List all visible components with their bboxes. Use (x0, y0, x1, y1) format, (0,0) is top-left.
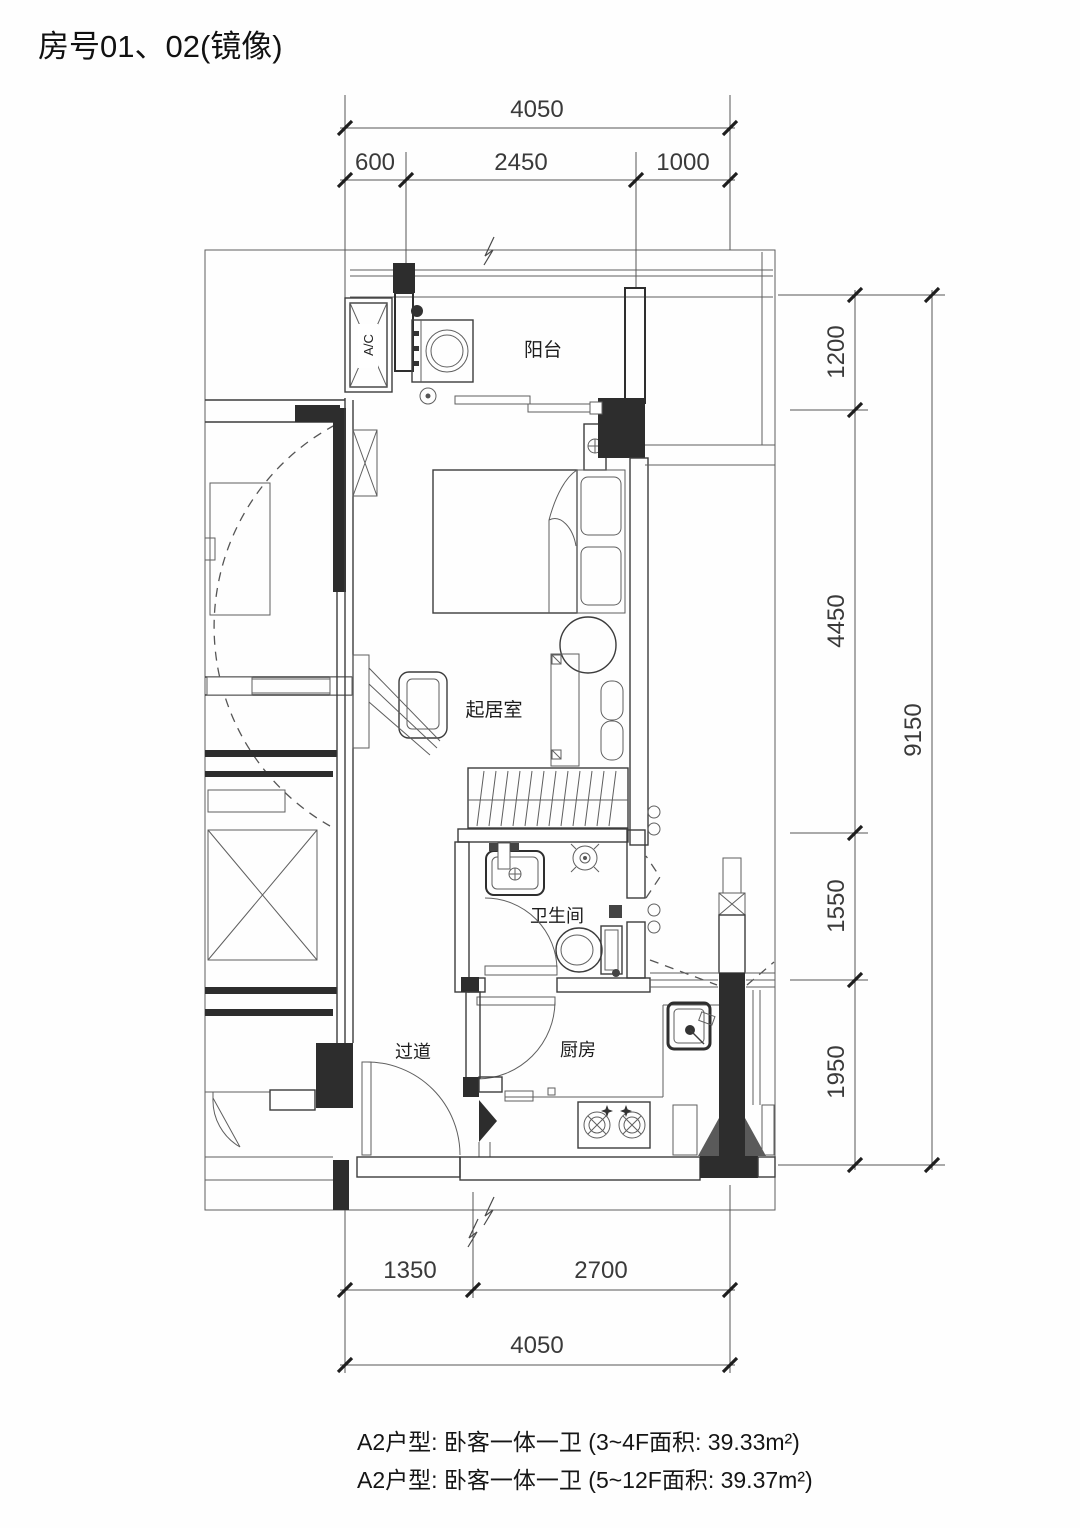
dim-right-seg1: 1200 (823, 325, 850, 378)
duct-marker (479, 1100, 497, 1142)
washing-machine (411, 305, 473, 382)
wardrobe (468, 768, 628, 828)
floor-plan-drawing: 房号01、02(镜像) 4050 600 2450 1000 1200 4450… (0, 0, 1080, 1528)
desk (353, 655, 440, 755)
unit-notes: A2户型: 卧客一体一卫 (3~4F面积: 39.33m²) A2户型: 卧客一… (357, 1429, 813, 1493)
bathroom-sink (486, 843, 544, 895)
room-label-bathroom: 卫生间 (530, 906, 584, 926)
dim-right-seg2: 4450 (823, 594, 850, 647)
column-top (393, 263, 415, 293)
dim-right-seg4: 1950 (823, 1045, 850, 1098)
room-label-balcony: 阳台 (524, 339, 562, 361)
kitchen-door (477, 997, 555, 1079)
dim-bottom-seg1: 1350 (383, 1257, 436, 1284)
bottom-wall (357, 1155, 775, 1180)
balcony: A/C 阳台 (345, 252, 773, 470)
pillow (581, 547, 621, 605)
column-corner (598, 398, 645, 458)
cabinet (353, 430, 377, 496)
shower-drain (571, 844, 599, 872)
room-label-corridor: 过道 (395, 1042, 431, 1062)
note-line-1: A2户型: 卧客一体一卫 (3~4F面积: 39.33m²) (357, 1429, 800, 1455)
dimensions-right: 1200 4450 1550 1950 9150 (778, 288, 945, 1172)
living-room: 起居室 (345, 398, 648, 1043)
room-label-living: 起居室 (465, 699, 522, 721)
dim-top-seg1: 600 (355, 149, 395, 176)
dim-bottom-seg2: 2700 (574, 1257, 627, 1284)
note-line-2: A2户型: 卧客一体一卫 (5~12F面积: 39.37m²) (357, 1467, 813, 1493)
ac-unit: A/C (350, 303, 387, 387)
wall-right-hatched (630, 458, 648, 845)
dim-right-seg3: 1550 (823, 879, 850, 932)
dimensions-bottom: 1350 2700 4050 (338, 1185, 737, 1373)
dim-top-seg2: 2450 (494, 149, 547, 176)
sliding-door (455, 396, 530, 404)
round-table (560, 617, 616, 673)
stove (578, 1102, 650, 1148)
sofa (551, 654, 623, 766)
kitchen: 厨房 (477, 997, 719, 1148)
dim-right-total: 9150 (900, 703, 927, 756)
room-label-kitchen: 厨房 (560, 1040, 596, 1060)
pillow (581, 477, 621, 535)
armchair (399, 672, 447, 738)
faucet-symbol (411, 305, 423, 317)
ac-label: A/C (361, 334, 376, 356)
bathroom: 卫生间 (455, 829, 660, 992)
right-column-assembly (645, 445, 775, 1156)
left-core-area (205, 400, 353, 1210)
column-balcony-right (625, 288, 645, 403)
bed (433, 470, 625, 613)
entry-door (362, 1062, 460, 1155)
floor-plan-page: 房号01、02(镜像) 4050 600 2450 1000 1200 4450… (0, 0, 1080, 1528)
dim-bottom-total: 4050 (510, 1332, 563, 1359)
kitchen-sink (668, 1003, 715, 1049)
dim-top-seg3: 1000 (656, 149, 709, 176)
drawing-title: 房号01、02(镜像) (38, 29, 283, 64)
corridor: 过道 (362, 977, 502, 1157)
dim-top-total: 4050 (510, 96, 563, 123)
